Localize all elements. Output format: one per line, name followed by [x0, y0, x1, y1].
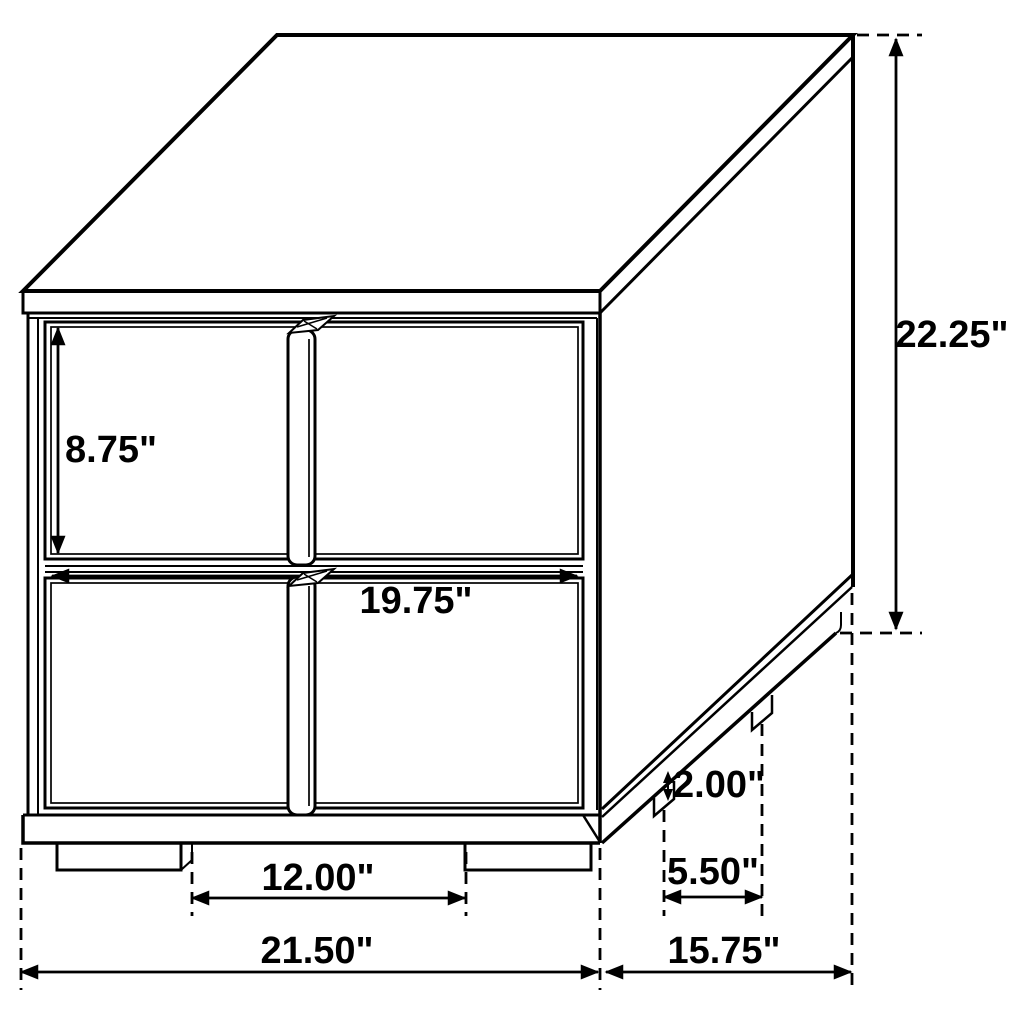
drawer-width-label: 19.75"	[359, 580, 472, 622]
drawer-height-label: 8.75"	[65, 429, 157, 471]
overall-width-label: 21.50"	[260, 930, 373, 972]
overall-depth-label: 15.75"	[667, 930, 780, 972]
overall-height-label: 22.25"	[895, 314, 1008, 356]
side-feet-spacing-label: 5.50"	[667, 851, 759, 893]
dimension-foot-height: 2.00"	[663, 764, 765, 806]
front-feet-spacing-label: 12.00"	[261, 857, 374, 899]
nightstand-dimension-diagram: 19.75" 8.75" 22.25" 2.00" 12.00" 5.50"	[0, 0, 1024, 1024]
lower-handle-bar	[288, 577, 315, 815]
upper-handle-bar	[288, 330, 315, 565]
foot-height-label: 2.00"	[673, 764, 765, 806]
